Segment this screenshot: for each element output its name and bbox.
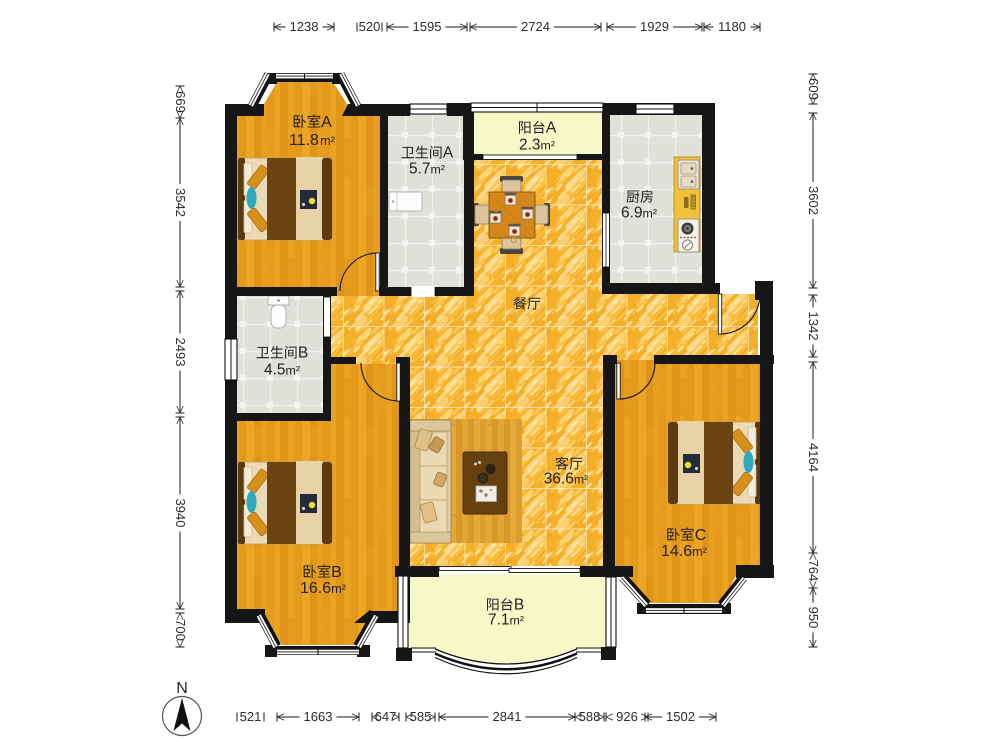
svg-text:1238: 1238: [290, 19, 319, 34]
svg-text:A: A: [321, 114, 332, 131]
svg-text:36.6: 36.6: [544, 471, 574, 488]
svg-text:1342: 1342: [806, 312, 821, 341]
svg-text:2.3: 2.3: [519, 137, 541, 154]
svg-text:1502: 1502: [666, 709, 695, 724]
svg-text:m²: m²: [574, 473, 588, 487]
svg-text:6.9: 6.9: [621, 205, 643, 222]
svg-text:11.8: 11.8: [289, 132, 319, 149]
svg-text:1929: 1929: [640, 19, 669, 34]
svg-text:m²: m²: [541, 139, 555, 153]
svg-text:A: A: [546, 120, 557, 137]
svg-text:m²: m²: [431, 163, 445, 177]
svg-text:16.6: 16.6: [300, 580, 331, 597]
svg-text:B: B: [514, 597, 524, 614]
svg-text:700: 700: [173, 619, 188, 641]
svg-text:4.5: 4.5: [264, 362, 286, 379]
svg-text:7.1: 7.1: [488, 612, 510, 629]
svg-text:5.7: 5.7: [409, 161, 431, 178]
svg-text:1663: 1663: [304, 709, 333, 724]
svg-text:1595: 1595: [413, 19, 442, 34]
svg-text:m²: m²: [510, 614, 524, 628]
svg-text:m²: m²: [692, 544, 708, 559]
svg-text:2724: 2724: [521, 19, 550, 34]
svg-text:m²: m²: [286, 364, 300, 378]
svg-text:N: N: [176, 680, 188, 697]
svg-text:m²: m²: [643, 207, 657, 221]
svg-text:764: 764: [806, 560, 821, 582]
svg-text:950: 950: [806, 607, 821, 629]
svg-text:2841: 2841: [493, 709, 522, 724]
svg-text:521: 521: [240, 709, 262, 724]
svg-text:3602: 3602: [806, 186, 821, 215]
svg-text:669: 669: [173, 91, 188, 113]
svg-text:647: 647: [375, 709, 397, 724]
svg-text:m²: m²: [331, 581, 347, 596]
svg-text:B: B: [331, 564, 342, 581]
svg-text:C: C: [695, 527, 707, 544]
svg-text:A: A: [443, 145, 454, 162]
svg-text:588: 588: [579, 709, 601, 724]
svg-text:4164: 4164: [806, 443, 821, 472]
svg-text:609: 609: [806, 78, 821, 100]
svg-text:B: B: [298, 345, 308, 362]
svg-text:1180: 1180: [718, 19, 746, 34]
svg-text:926: 926: [616, 709, 638, 724]
svg-text:2493: 2493: [173, 338, 188, 367]
svg-text:520: 520: [359, 19, 381, 34]
svg-text:14.6: 14.6: [661, 543, 692, 560]
svg-text:m²: m²: [320, 133, 336, 148]
svg-text:585: 585: [410, 709, 432, 724]
svg-text:3542: 3542: [173, 188, 188, 217]
svg-text:3940: 3940: [173, 499, 188, 528]
